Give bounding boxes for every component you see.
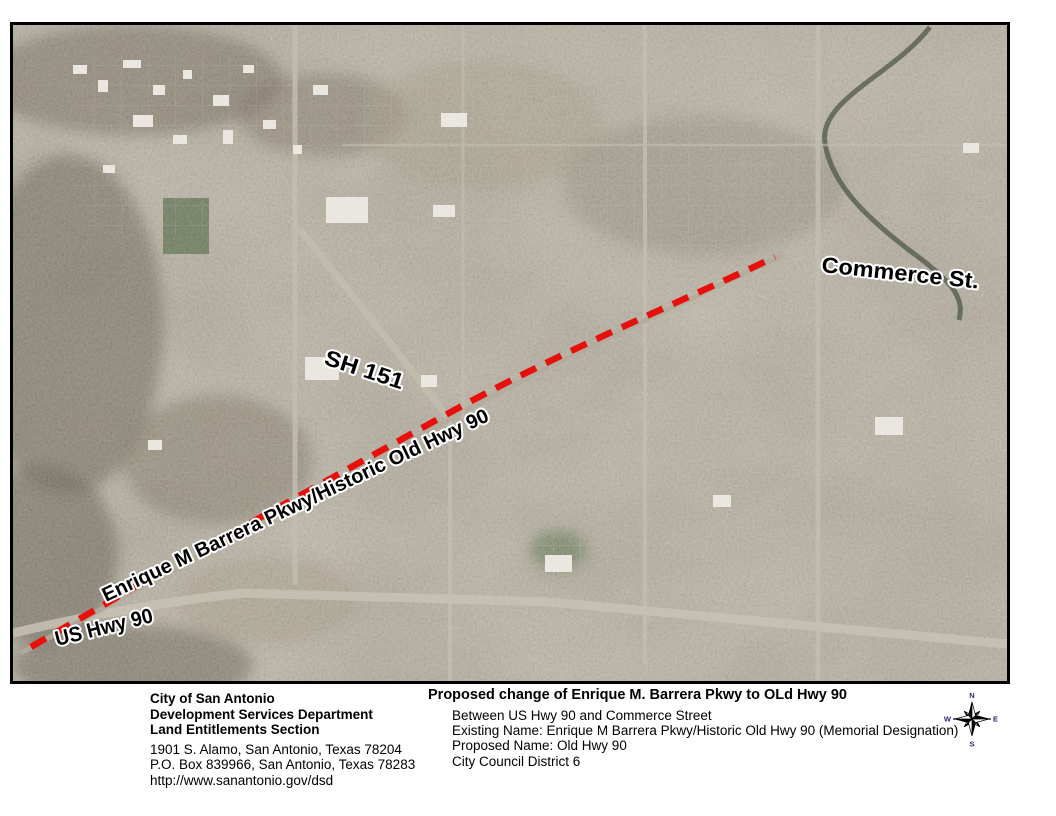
- agency-section: Land Entitlements Section: [150, 722, 415, 738]
- agency-name: City of San Antonio: [150, 691, 415, 707]
- proposal-extent: Between US Hwy 90 and Commerce Street: [452, 708, 958, 723]
- proposal-block: Proposed change of Enrique M. Barrera Pk…: [428, 687, 958, 769]
- street-grid-nw: [73, 55, 343, 235]
- agency-department: Development Services Department: [150, 707, 415, 723]
- compass-rose: N S E W: [944, 688, 1000, 750]
- map-footer: City of San Antonio Development Services…: [0, 684, 1056, 816]
- aerial-map-canvas: US Hwy 90 Enrique M Barrera Pkwy/Histori…: [13, 25, 1007, 681]
- aerial-map-frame: US Hwy 90 Enrique M Barrera Pkwy/Histori…: [10, 22, 1010, 684]
- proposal-proposed-name: Proposed Name: Old Hwy 90: [452, 738, 958, 753]
- agency-website: http://www.sanantonio.gov/dsd: [150, 773, 415, 789]
- agency-address-1: 1901 S. Alamo, San Antonio, Texas 78204: [150, 742, 415, 758]
- compass-rose-icon: N S E W: [944, 688, 1000, 750]
- compass-north-label: N: [969, 691, 974, 700]
- agency-block: City of San Antonio Development Services…: [150, 691, 415, 788]
- compass-south-label: S: [969, 740, 974, 749]
- proposal-existing-name: Existing Name: Enrique M Barrera Pkwy/Hi…: [452, 723, 958, 738]
- agency-address-2: P.O. Box 839966, San Antonio, Texas 7828…: [150, 757, 415, 773]
- proposal-district: City Council District 6: [452, 754, 958, 769]
- proposal-title: Proposed change of Enrique M. Barrera Pk…: [428, 687, 958, 704]
- compass-east-label: E: [993, 715, 998, 724]
- compass-west-label: W: [944, 715, 952, 724]
